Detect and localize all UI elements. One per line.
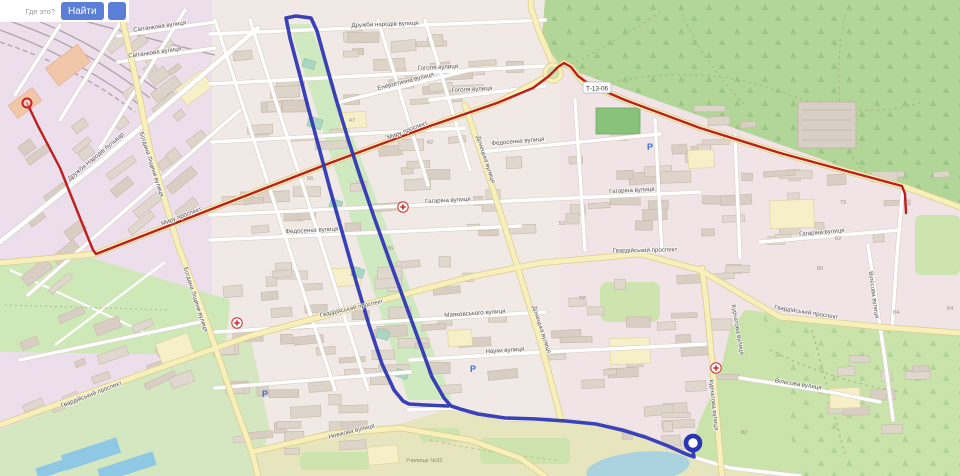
medical-cross-icon <box>398 202 408 212</box>
medical-cross-icon <box>711 363 721 373</box>
house-number: 84 <box>893 310 900 316</box>
blue-route-end-marker[interactable] <box>686 436 700 450</box>
road-shield: Т-13-06 <box>583 82 611 93</box>
street-label: Гвардійський проспект <box>613 246 678 254</box>
house-number: 62 <box>835 236 841 242</box>
road-shield-label: Т-13-06 <box>586 86 609 93</box>
house-number: 47 <box>349 118 355 124</box>
house-number: 42 <box>427 140 433 146</box>
parking-icon: P <box>647 142 653 152</box>
area-label: Училище №32 <box>406 458 443 464</box>
house-number: 52 <box>559 221 565 227</box>
parking-icon: P <box>470 364 476 374</box>
find-button[interactable]: Найти <box>61 2 104 20</box>
parking-icon: P <box>262 389 268 399</box>
red-route-start-marker[interactable] <box>23 99 32 108</box>
search-toolbar: Найти <box>0 0 129 22</box>
house-number: 64 <box>947 306 954 312</box>
house-number: 82 <box>741 430 747 436</box>
map-stage[interactable]: PPP Т-13-06 474236526277808479826456 Учи… <box>0 0 960 476</box>
house-number: 36 <box>387 246 393 252</box>
house-number: 79 <box>840 200 846 206</box>
medical-cross-icon <box>232 318 242 328</box>
area-labels: Училище №32 <box>406 458 443 464</box>
route-button[interactable] <box>108 2 126 20</box>
house-number: 80 <box>817 266 823 272</box>
house-number: 56 <box>307 176 313 182</box>
house-number: 77 <box>579 296 585 302</box>
map-canvas[interactable]: PPP Т-13-06 474236526277808479826456 Учи… <box>0 0 960 476</box>
